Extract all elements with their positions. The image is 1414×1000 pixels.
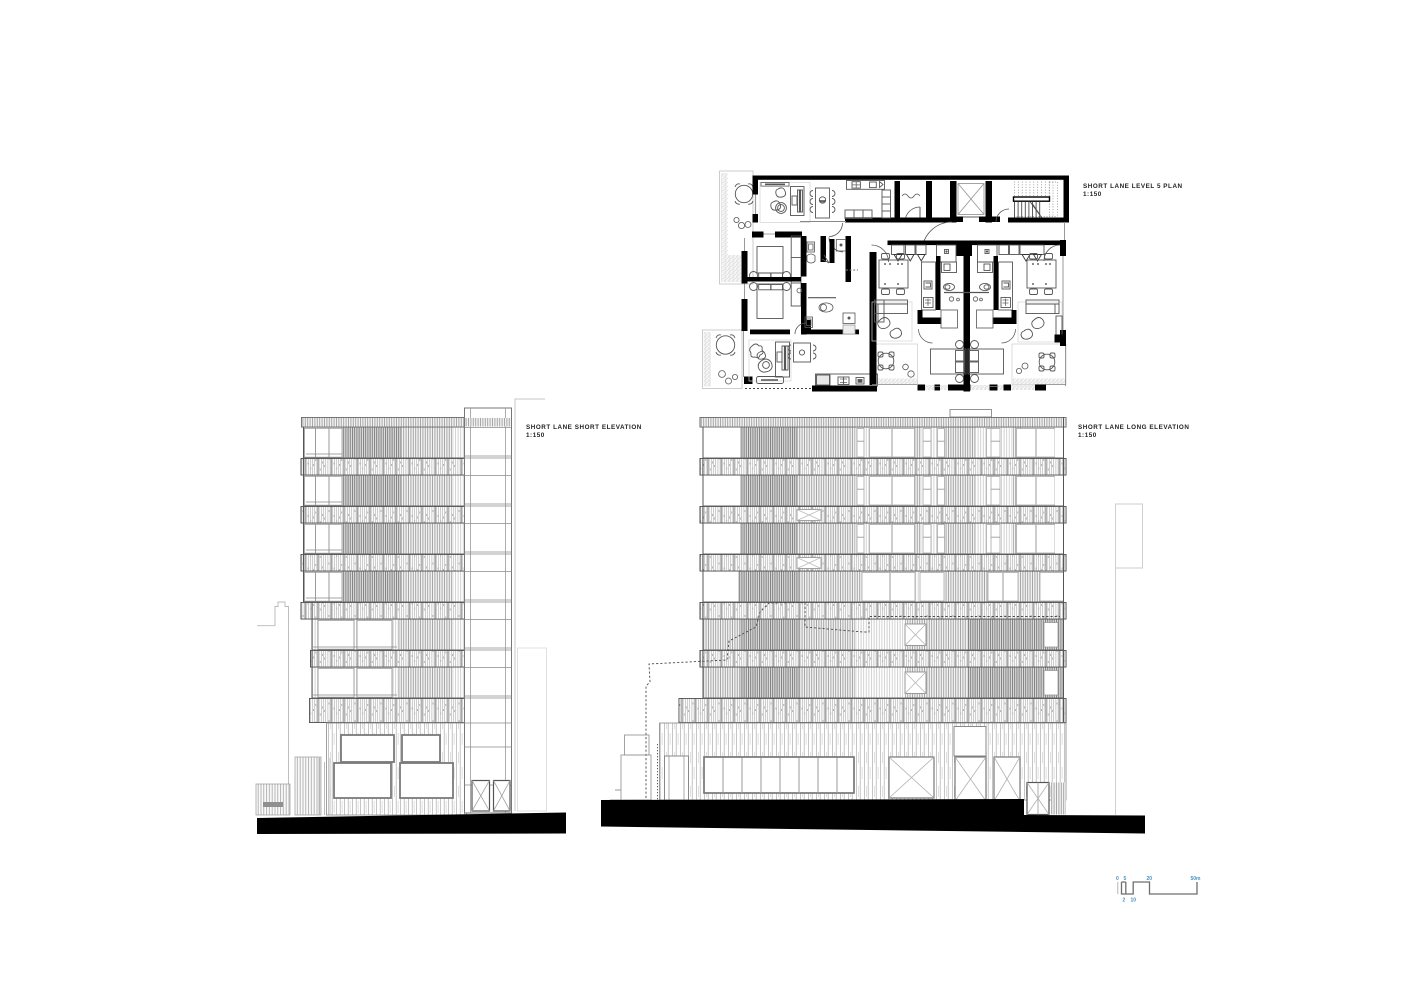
svg-text:2: 2 [1123,898,1126,904]
svg-text:SHORT LANE LEVEL 5 PLAN: SHORT LANE LEVEL 5 PLAN [1083,183,1183,190]
svg-text:50m: 50m [1191,876,1202,882]
svg-text:20: 20 [1147,876,1153,882]
svg-text:SHORT LANE LONG ELEVATION: SHORT LANE LONG ELEVATION [1078,424,1189,431]
svg-text:1:150: 1:150 [1083,191,1102,198]
svg-text:5: 5 [1124,876,1127,882]
svg-text:1:150: 1:150 [526,432,545,439]
svg-text:1:150: 1:150 [1078,432,1097,439]
svg-text:SHORT LANE SHORT ELEVATION: SHORT LANE SHORT ELEVATION [526,424,642,431]
svg-text:0: 0 [1116,876,1119,882]
svg-text:10: 10 [1131,898,1137,904]
